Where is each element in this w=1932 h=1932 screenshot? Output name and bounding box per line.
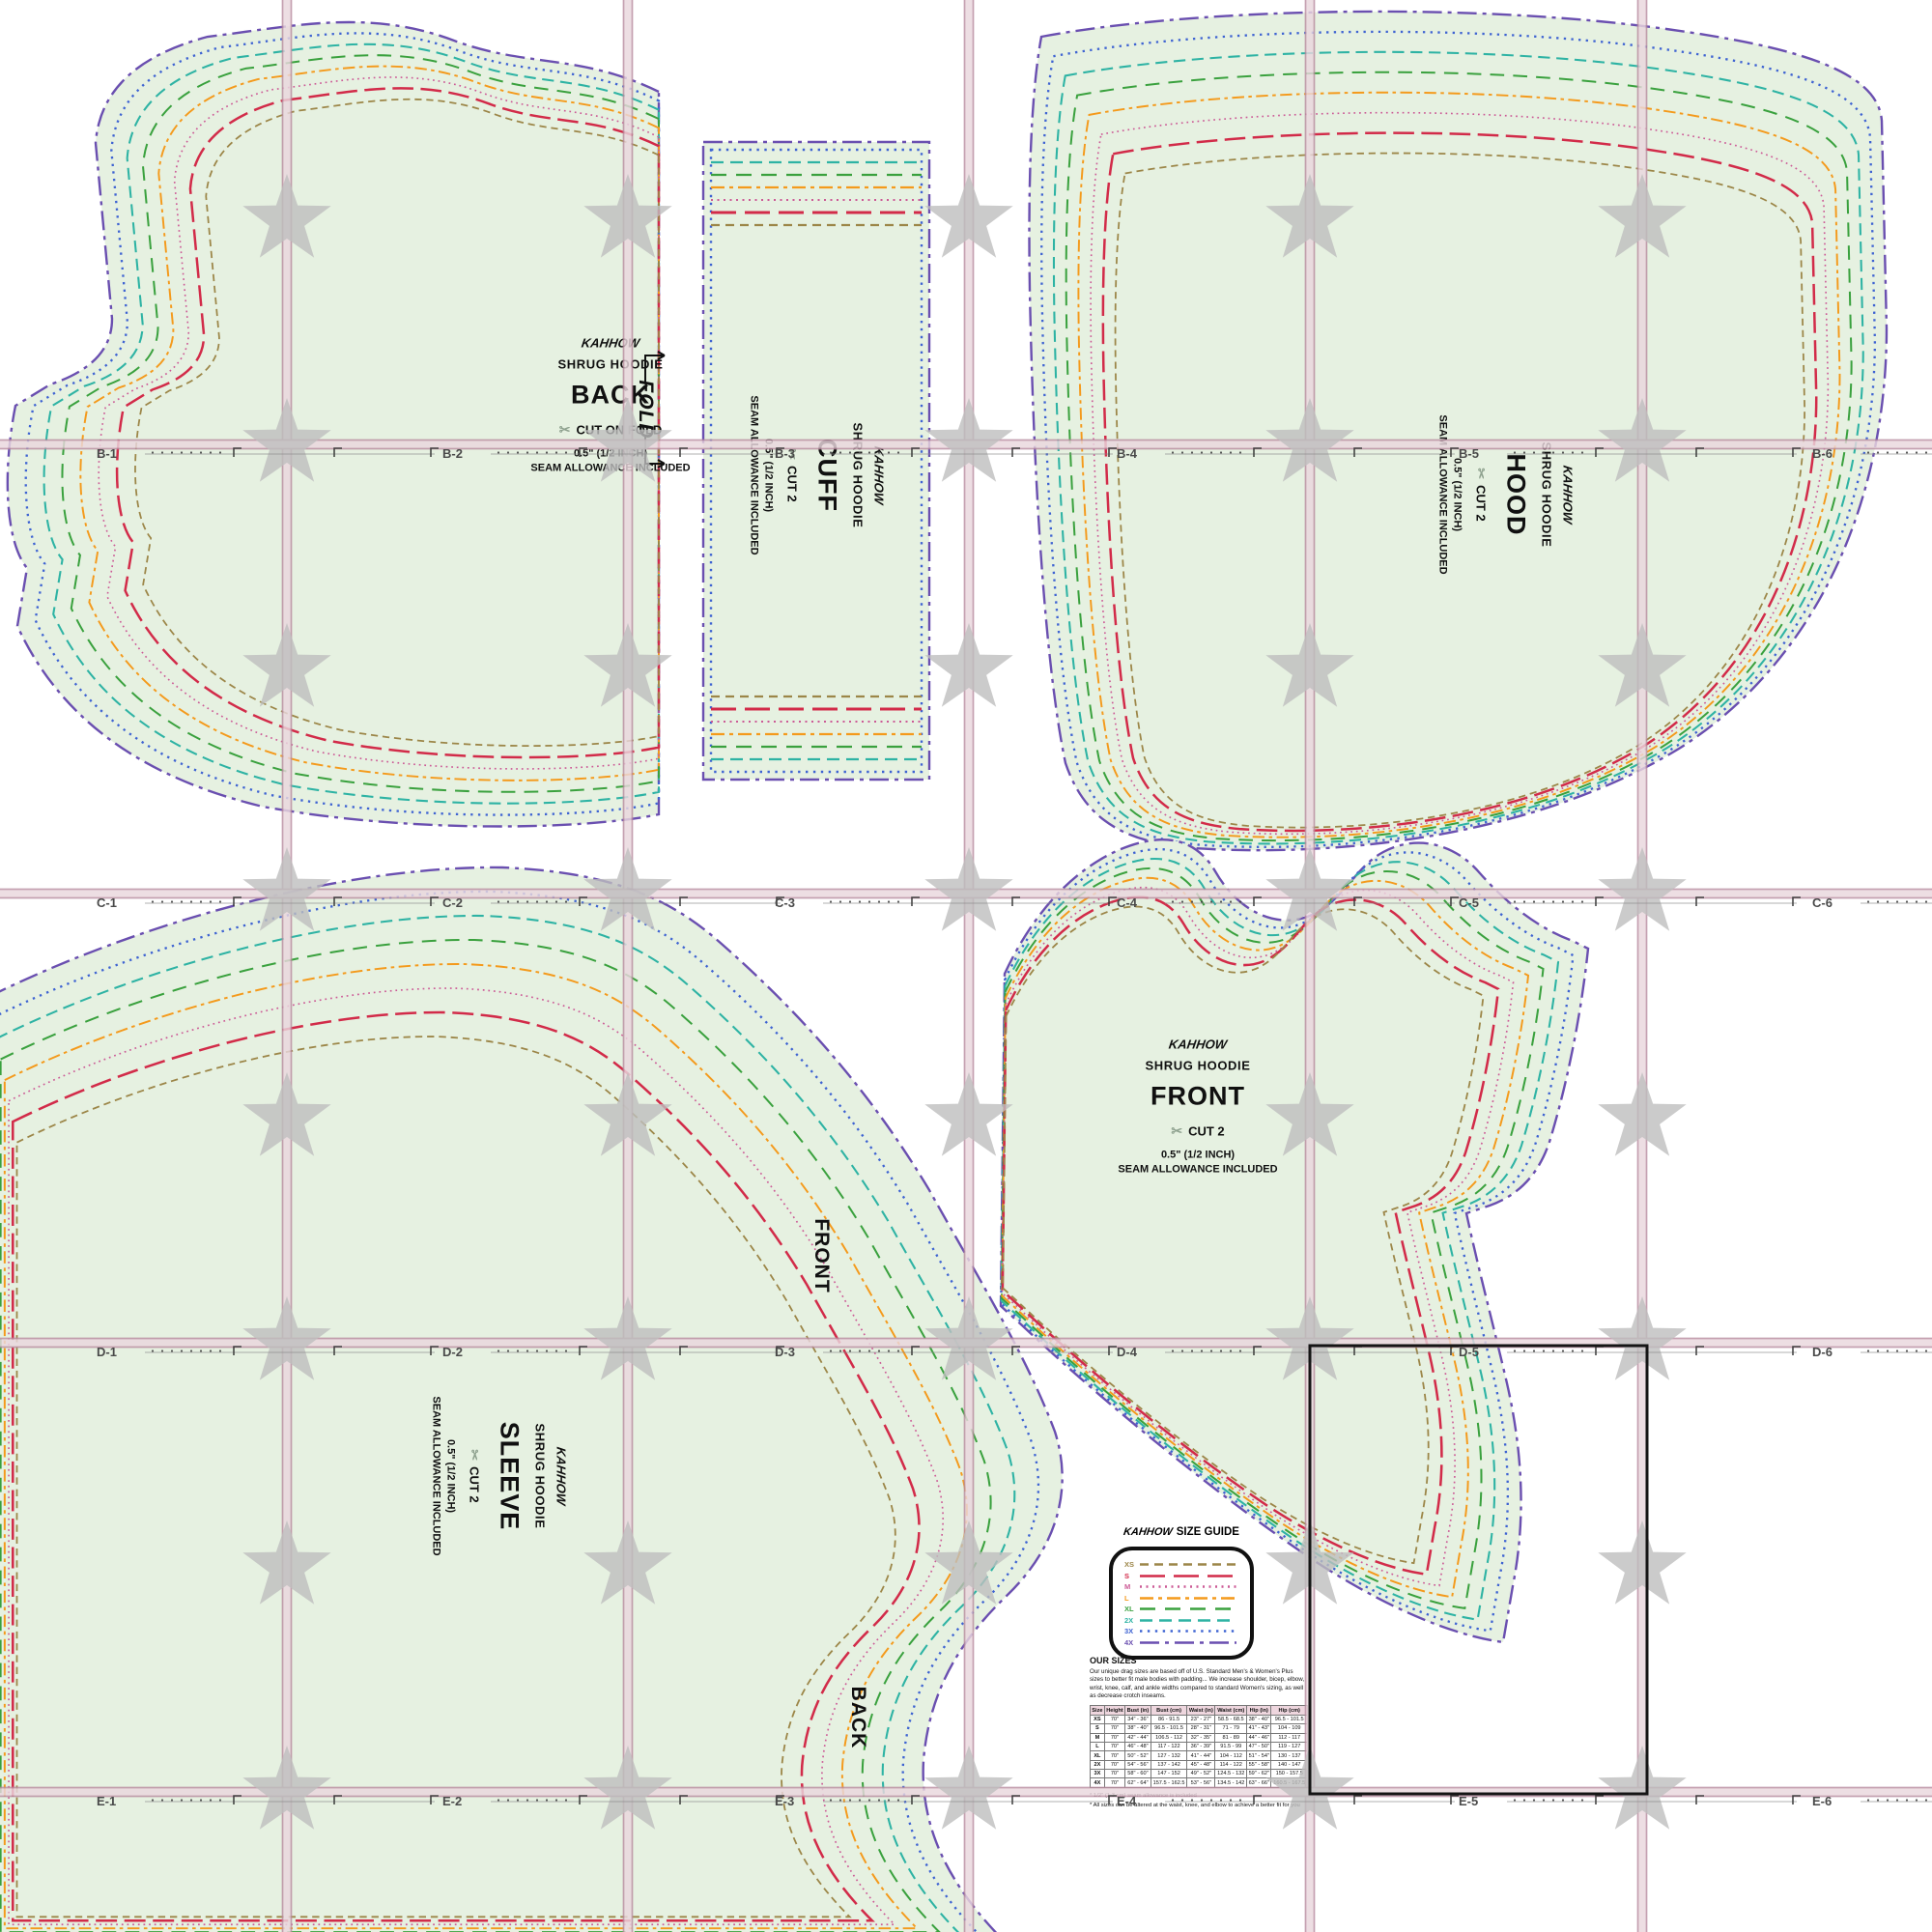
brand-logo: KAHHOW [1560, 378, 1575, 611]
table-cell: 3X [1091, 1770, 1105, 1778]
table-cell: XL [1091, 1751, 1105, 1760]
seam-allowance-note: 0.5" (1/2 INCH)SEAM ALLOWANCE INCLUDED [1435, 379, 1464, 611]
size-guide-size-label: 2X [1124, 1616, 1140, 1625]
size-guide-size-label: M [1124, 1582, 1140, 1591]
table-cell: 38" - 40" [1125, 1724, 1151, 1733]
size-guide-row: 4X [1124, 1637, 1240, 1649]
size-guide-line-sample [1140, 1584, 1236, 1589]
table-cell: 70" [1104, 1778, 1124, 1787]
table-cell: 53" - 56" [1187, 1778, 1215, 1787]
table-cell: 112 - 117 [1271, 1733, 1308, 1742]
cut-instruction: ✂CUT ON FOLD [495, 422, 726, 439]
table-cell: 36" - 39" [1187, 1742, 1215, 1750]
size-guide-line-sample [1140, 1640, 1236, 1645]
our-sizes-paragraph: Our unique drag sizes are based off of U… [1090, 1668, 1308, 1700]
table-cell: 45" - 48" [1187, 1760, 1215, 1769]
brand-logo: KAHHOW [871, 363, 886, 587]
sizes-table-header: Hip (cm) [1271, 1706, 1308, 1715]
sizes-table-head: SizeHeightBust (in)Bust (cm)Waist (in)Wa… [1091, 1706, 1308, 1715]
cut-instruction: ✂CUT 2 [1472, 379, 1489, 611]
scissors-icon: ✂ [784, 448, 800, 460]
table-cell: 134.5 - 142 [1215, 1778, 1247, 1787]
table-row: S70"38" - 40"96.5 - 101.528" - 31"71 - 7… [1091, 1724, 1308, 1733]
brand-logo: KAHHOW [554, 1359, 568, 1593]
table-cell: 50" - 52" [1125, 1751, 1151, 1760]
table-cell: 63" - 66" [1247, 1778, 1271, 1787]
table-cell: 150 - 157.5 [1271, 1770, 1308, 1778]
table-cell: 127 - 132 [1151, 1751, 1186, 1760]
product-name: SHRUG HOODIE [495, 357, 726, 372]
cut-instruction: ✂CUT 2 [466, 1360, 482, 1592]
table-cell: 104 - 109 [1271, 1724, 1308, 1733]
table-cell: 23" - 27" [1187, 1715, 1215, 1723]
product-name: SHRUG HOODIE [1077, 1059, 1319, 1073]
size-guide-size-label: L [1124, 1594, 1140, 1603]
table-cell: 104 - 112 [1215, 1751, 1247, 1760]
table-cell: 137 - 142 [1151, 1760, 1186, 1769]
table-cell: 70" [1104, 1724, 1124, 1733]
brand-logo: KAHHOW [1076, 1037, 1320, 1052]
piece-name: CUFF [811, 364, 841, 586]
table-cell: 117 - 122 [1151, 1742, 1186, 1750]
piece-name: FRONT [1077, 1082, 1319, 1112]
size-guide-row: XL [1124, 1604, 1240, 1615]
scissors-icon: ✂ [467, 1449, 482, 1461]
size-guide-title: KAHHOWSIZE GUIDE [1109, 1526, 1254, 1538]
table-cell: XS [1091, 1715, 1105, 1723]
text-layer: KAHHOW SHRUG HOODIE BACK ✂CUT ON FOLD 0.… [0, 0, 1932, 1932]
piece-name: HOOD [1500, 379, 1530, 611]
scissors-icon: ✂ [1473, 468, 1489, 479]
table-cell: 71 - 79 [1215, 1724, 1247, 1733]
table-row: 4X70"62" - 64"157.5 - 162.553" - 56"134.… [1091, 1778, 1308, 1787]
seam-allowance-note: 0.5" (1/2 INCH)SEAM ALLOWANCE INCLUDED [495, 447, 726, 476]
table-cell: 42" - 44" [1125, 1733, 1151, 1742]
size-guide-line-sample [1140, 1629, 1236, 1634]
table-cell: 55" - 58" [1247, 1760, 1271, 1769]
table-cell: 46" - 48" [1125, 1742, 1151, 1750]
table-cell: 96.5 - 101.5 [1271, 1715, 1308, 1723]
table-cell: 32" - 35" [1187, 1733, 1215, 1742]
scissors-icon: ✂ [1171, 1123, 1182, 1139]
product-name: SHRUG HOODIE [532, 1360, 547, 1592]
sizes-table-body: XS70"34" - 36"86 - 91.523" - 27"58.5 - 6… [1091, 1715, 1308, 1787]
table-cell: 62" - 64" [1125, 1778, 1151, 1787]
table-row: 2X70"54" - 56"137 - 14245" - 48"114 - 12… [1091, 1760, 1308, 1769]
sizes-footnote-1: * 1/2" (1.3 cm) seam allowance is includ… [1090, 1792, 1308, 1801]
table-cell: 44" - 46" [1247, 1733, 1271, 1742]
table-cell: 119 - 127 [1271, 1742, 1308, 1750]
brand-logo: KAHHOW [1122, 1526, 1173, 1538]
table-cell: 81 - 89 [1215, 1733, 1247, 1742]
size-guide-size-label: XS [1124, 1560, 1140, 1569]
table-cell: 140 - 147 [1271, 1760, 1308, 1769]
table-cell: 96.5 - 101.5 [1151, 1724, 1186, 1733]
size-guide-size-label: S [1124, 1572, 1140, 1580]
size-guide-box: XSSMLXL2X3X4X [1109, 1547, 1254, 1660]
table-row: XL70"50" - 52"127 - 13241" - 44"104 - 11… [1091, 1751, 1308, 1760]
piece-name: SLEEVE [494, 1360, 524, 1592]
table-cell: 51" - 54" [1247, 1751, 1271, 1760]
table-cell: 49" - 52" [1187, 1770, 1215, 1778]
sizes-table-header: Waist (cm) [1215, 1706, 1247, 1715]
table-cell: 86 - 91.5 [1151, 1715, 1186, 1723]
size-guide-legend: KAHHOWSIZE GUIDE XSSMLXL2X3X4X [1109, 1526, 1254, 1660]
table-cell: 58.5 - 68.5 [1215, 1715, 1247, 1723]
sizes-table-header: Height [1104, 1706, 1124, 1715]
table-cell: 28" - 31" [1187, 1724, 1215, 1733]
table-cell: 70" [1104, 1751, 1124, 1760]
table-cell: 54" - 56" [1125, 1760, 1151, 1769]
table-cell: 91.5 - 99 [1215, 1742, 1247, 1750]
table-cell: 34" - 36" [1125, 1715, 1151, 1723]
table-cell: 70" [1104, 1715, 1124, 1723]
product-name: SHRUG HOODIE [850, 364, 865, 586]
table-cell: 70" [1104, 1733, 1124, 1742]
seam-allowance-note: 0.5" (1/2 INCH)SEAM ALLOWANCE INCLUDED [429, 1360, 458, 1592]
size-guide-row: 3X [1124, 1626, 1240, 1637]
size-guide-line-sample [1140, 1618, 1236, 1623]
table-cell: 147 - 152 [1151, 1770, 1186, 1778]
size-guide-line-sample [1140, 1606, 1236, 1611]
table-cell: 114 - 122 [1215, 1760, 1247, 1769]
sizes-footnote-2: * All sizes can be altered at the waist,… [1090, 1802, 1308, 1810]
table-cell: 124.5 - 132 [1215, 1770, 1247, 1778]
sleeve-back-edge-label: BACK [846, 1687, 869, 1749]
product-name: SHRUG HOODIE [1539, 379, 1553, 611]
table-cell: L [1091, 1742, 1105, 1750]
table-cell: 106.5 - 112 [1151, 1733, 1186, 1742]
size-guide-line-sample [1140, 1562, 1236, 1567]
table-cell: S [1091, 1724, 1105, 1733]
table-cell: 70" [1104, 1770, 1124, 1778]
sizes-table-header: Size [1091, 1706, 1105, 1715]
size-guide-row: S [1124, 1571, 1240, 1582]
table-cell: 157.5 - 162.5 [1151, 1778, 1186, 1787]
sewing-pattern-sheet: { "brand": { "logo": "KAHHOW" }, "fold_l… [0, 0, 1932, 1932]
size-guide-row: 2X [1124, 1615, 1240, 1627]
table-cell: 59" - 62" [1247, 1770, 1271, 1778]
cut-instruction: ✂CUT 2 [783, 364, 800, 586]
table-row: L70"46" - 48"117 - 12236" - 39"91.5 - 99… [1091, 1742, 1308, 1750]
table-cell: 58" - 60" [1125, 1770, 1151, 1778]
table-cell: 160.5 - 167.5 [1271, 1778, 1308, 1787]
table-cell: 70" [1104, 1760, 1124, 1769]
scissors-icon: ✂ [559, 422, 571, 438]
size-guide-size-label: XL [1124, 1605, 1140, 1613]
piece-name: BACK [495, 381, 726, 411]
table-cell: 47" - 50" [1247, 1742, 1271, 1750]
size-guide-row: M [1124, 1581, 1240, 1593]
table-cell: 38" - 40" [1247, 1715, 1271, 1723]
sizes-table-header: Bust (cm) [1151, 1706, 1186, 1715]
sizes-table-header: Bust (in) [1125, 1706, 1151, 1715]
our-sizes-heading: OUR SIZES [1090, 1656, 1308, 1665]
size-guide-size-label: 4X [1124, 1638, 1140, 1647]
sleeve-front-edge-label: FRONT [810, 1218, 833, 1293]
table-cell: 41" - 43" [1247, 1724, 1271, 1733]
table-row: XS70"34" - 36"86 - 91.523" - 27"58.5 - 6… [1091, 1715, 1308, 1723]
seam-allowance-note: 0.5" (1/2 INCH)SEAM ALLOWANCE INCLUDED [1077, 1149, 1319, 1178]
cut-instruction: ✂CUT 2 [1077, 1123, 1319, 1140]
table-cell: 4X [1091, 1778, 1105, 1787]
size-guide-line-sample [1140, 1596, 1236, 1601]
size-guide-line-sample [1140, 1574, 1236, 1578]
table-row: 3X70"58" - 60"147 - 15249" - 52"124.5 - … [1091, 1770, 1308, 1778]
size-guide-row: L [1124, 1593, 1240, 1605]
table-cell: 41" - 44" [1187, 1751, 1215, 1760]
table-cell: 70" [1104, 1742, 1124, 1750]
size-guide-row: XS [1124, 1559, 1240, 1571]
fold-edge-label: FOLD [634, 380, 657, 439]
table-cell: 2X [1091, 1760, 1105, 1769]
seam-allowance-note: 0.5" (1/2 INCH)SEAM ALLOWANCE INCLUDED [747, 364, 776, 586]
our-sizes-block: OUR SIZES Our unique drag sizes are base… [1090, 1656, 1308, 1810]
sizes-table-header: Waist (in) [1187, 1706, 1215, 1715]
table-cell: M [1091, 1733, 1105, 1742]
table-cell: 130 - 137 [1271, 1751, 1308, 1760]
size-guide-size-label: 3X [1124, 1627, 1140, 1635]
table-row: M70"42" - 44"106.5 - 11232" - 35"81 - 89… [1091, 1733, 1308, 1742]
sizes-table: SizeHeightBust (in)Bust (cm)Waist (in)Wa… [1090, 1705, 1308, 1787]
brand-logo: KAHHOW [494, 336, 727, 351]
sizes-table-header: Hip (in) [1247, 1706, 1271, 1715]
